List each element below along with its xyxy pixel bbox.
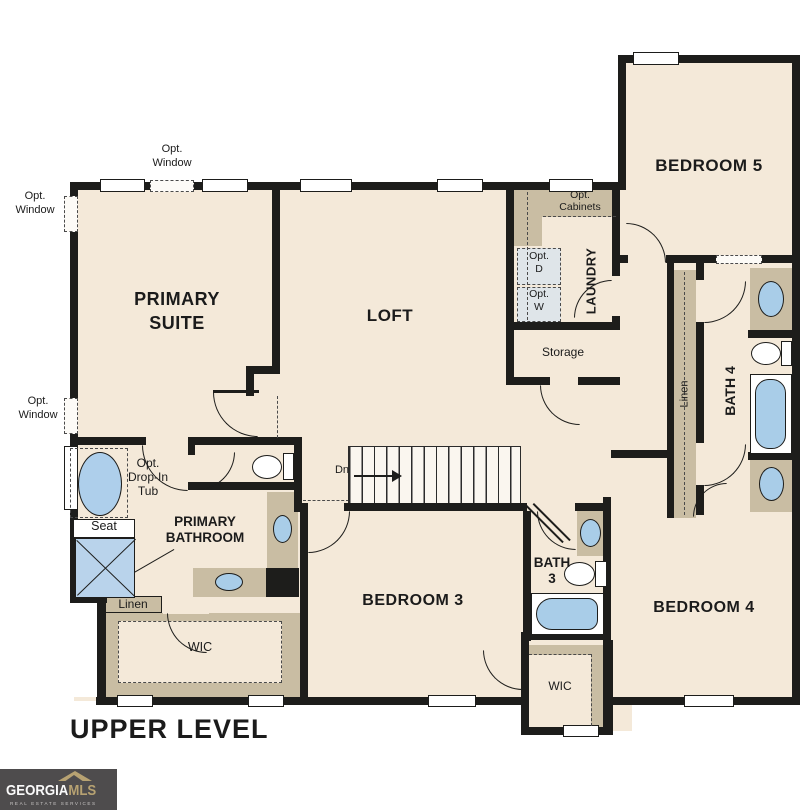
opt-cabinets-vertical [514, 190, 542, 246]
label-opt-cabinets: Opt. [570, 190, 590, 201]
window [202, 179, 248, 192]
toilet-tank [595, 561, 607, 587]
wall-bath4-left-b [696, 322, 704, 443]
opt-window-top [150, 180, 194, 192]
wall-laundry-left [506, 182, 514, 385]
window [100, 179, 145, 192]
wall-bath4-divider-top [748, 330, 792, 338]
logo-tagline: REAL ESTATE SERVICES [10, 801, 97, 806]
wall-bedroom5-bottom-b [666, 255, 718, 263]
label-linen-left: Linen [118, 598, 147, 611]
wall-primarybath-top-b [188, 437, 302, 445]
floor-plan-page: PRIMARY SUITE LOFT LAUNDRY Storage BEDRO… [0, 0, 810, 810]
label-opt-washer: Opt. [529, 289, 549, 300]
window-bedroom5 [633, 52, 679, 65]
sink [273, 515, 292, 543]
wall-bedroom3-right [523, 511, 531, 641]
room-label-bath3-2: 3 [548, 572, 556, 586]
window [684, 695, 734, 707]
room-label-bedroom3: BEDROOM 3 [362, 593, 463, 610]
dashed-hall-line [303, 500, 349, 501]
wall-primary-loft-divider [272, 182, 280, 372]
room-label-bedroom4: BEDROOM 4 [653, 600, 754, 617]
toilet-tank [781, 341, 792, 366]
label-opt-washer-2: W [534, 302, 544, 313]
wall-storage-bottom-a [506, 377, 550, 385]
dashed-cabinet-edge [543, 216, 616, 217]
page-title: UPPER LEVEL [70, 714, 269, 745]
sink [759, 467, 784, 501]
label-opt-window-left1-2: Window [15, 205, 54, 217]
wall-bath4-left-a [696, 263, 704, 280]
window [248, 695, 284, 707]
label-opt-window-top: Opt. [162, 144, 183, 156]
label-opt-window-left1: Opt. [25, 191, 46, 203]
room-label-laundry: LAUNDRY [585, 248, 598, 315]
window [300, 179, 352, 192]
room-label-wic-bedroom3: WIC [548, 680, 571, 693]
room-label-primary-suite-2: SUITE [149, 314, 205, 333]
wall-bedroom5-bottom-c [761, 255, 800, 263]
room-label-primary-suite: PRIMARY [134, 290, 220, 309]
label-opt-tub: Opt. [137, 457, 160, 470]
wall-laundry-storage-divider [506, 322, 620, 330]
wall-left-lower [97, 600, 106, 705]
dashed-wic3-top [529, 654, 591, 655]
wall-laundry-right-b [612, 316, 620, 330]
room-label-primary-bathroom: PRIMARY [174, 515, 236, 529]
georgia-mls-logo: GEORGIAMLS REAL ESTATE SERVICES [0, 769, 117, 810]
window [117, 695, 153, 707]
wall-storage-bottom-b [578, 377, 620, 385]
wall-bedroom4-left [603, 497, 611, 697]
sink [580, 519, 601, 547]
label-opt-tub-2: Drop-In [128, 471, 168, 484]
bathtub [536, 598, 598, 630]
wall-stairs-bottom [344, 503, 527, 511]
opt-window-left-lower [64, 398, 78, 434]
wall-ptoilet-right [294, 437, 302, 512]
wall-ptoilet-left [188, 445, 195, 455]
room-label-bedroom5: BEDROOM 5 [655, 157, 762, 175]
wall-bedroom5-left [618, 55, 626, 190]
label-opt-tub-3: Tub [138, 485, 158, 498]
room-label-bath3: BATH [534, 556, 571, 570]
label-stairs-down: Dn [335, 465, 349, 477]
window-wic-bump [563, 725, 599, 737]
room-label-bath4: BATH 4 [723, 366, 737, 416]
label-opt-window-left2-2: Window [18, 410, 57, 422]
wall-linen-right-left [667, 263, 674, 518]
logo-georgia-text: GEORGIA [6, 782, 68, 799]
wall-bedroom4-top [611, 450, 669, 458]
label-opt-dryer: Opt. [529, 251, 549, 262]
label-opt-window-left2: Opt. [28, 396, 49, 408]
window [428, 695, 476, 707]
toilet-bowl [751, 342, 781, 365]
toilet-bowl [252, 455, 282, 479]
sink [215, 573, 243, 591]
room-label-primary-bathroom-2: BATHROOM [166, 531, 245, 545]
label-opt-window-top-2: Window [152, 158, 191, 170]
toilet-tank [283, 453, 294, 480]
window [437, 179, 483, 192]
roof-icon-notch [64, 775, 84, 782]
stairs-arrow-head [392, 470, 402, 482]
wall-bath3-top [575, 503, 611, 511]
stairs-direction-line [354, 475, 394, 477]
wall-vanity-chunk [266, 568, 299, 597]
dashed-wic3-right [591, 654, 592, 726]
opt-opening-bedroom5 [716, 255, 762, 264]
dashed-opening-primary [277, 396, 278, 438]
logo-mls-text: MLS [68, 782, 96, 799]
logo-brand-text: GEORGIAMLS [6, 782, 96, 799]
left-notch [70, 603, 97, 697]
room-label-wic-primary: WIC [188, 641, 212, 654]
optional-drop-in-tub [78, 452, 122, 516]
room-label-storage: Storage [542, 346, 584, 359]
room-label-loft: LOFT [367, 307, 413, 325]
wall-primarybath-top-a [70, 437, 146, 445]
bathtub [755, 379, 786, 449]
wall-primary-bedroom3-divider [300, 503, 308, 705]
sink [758, 281, 784, 317]
opt-window-left-upper [64, 196, 78, 232]
wall-right-outer [792, 55, 800, 705]
dashed-cabinet-line [527, 192, 528, 320]
label-linen-right: Linen [680, 381, 691, 408]
label-seat: Seat [91, 520, 117, 533]
label-opt-cabinets-2: Cabinets [559, 202, 600, 213]
label-opt-dryer-2: D [535, 264, 543, 275]
